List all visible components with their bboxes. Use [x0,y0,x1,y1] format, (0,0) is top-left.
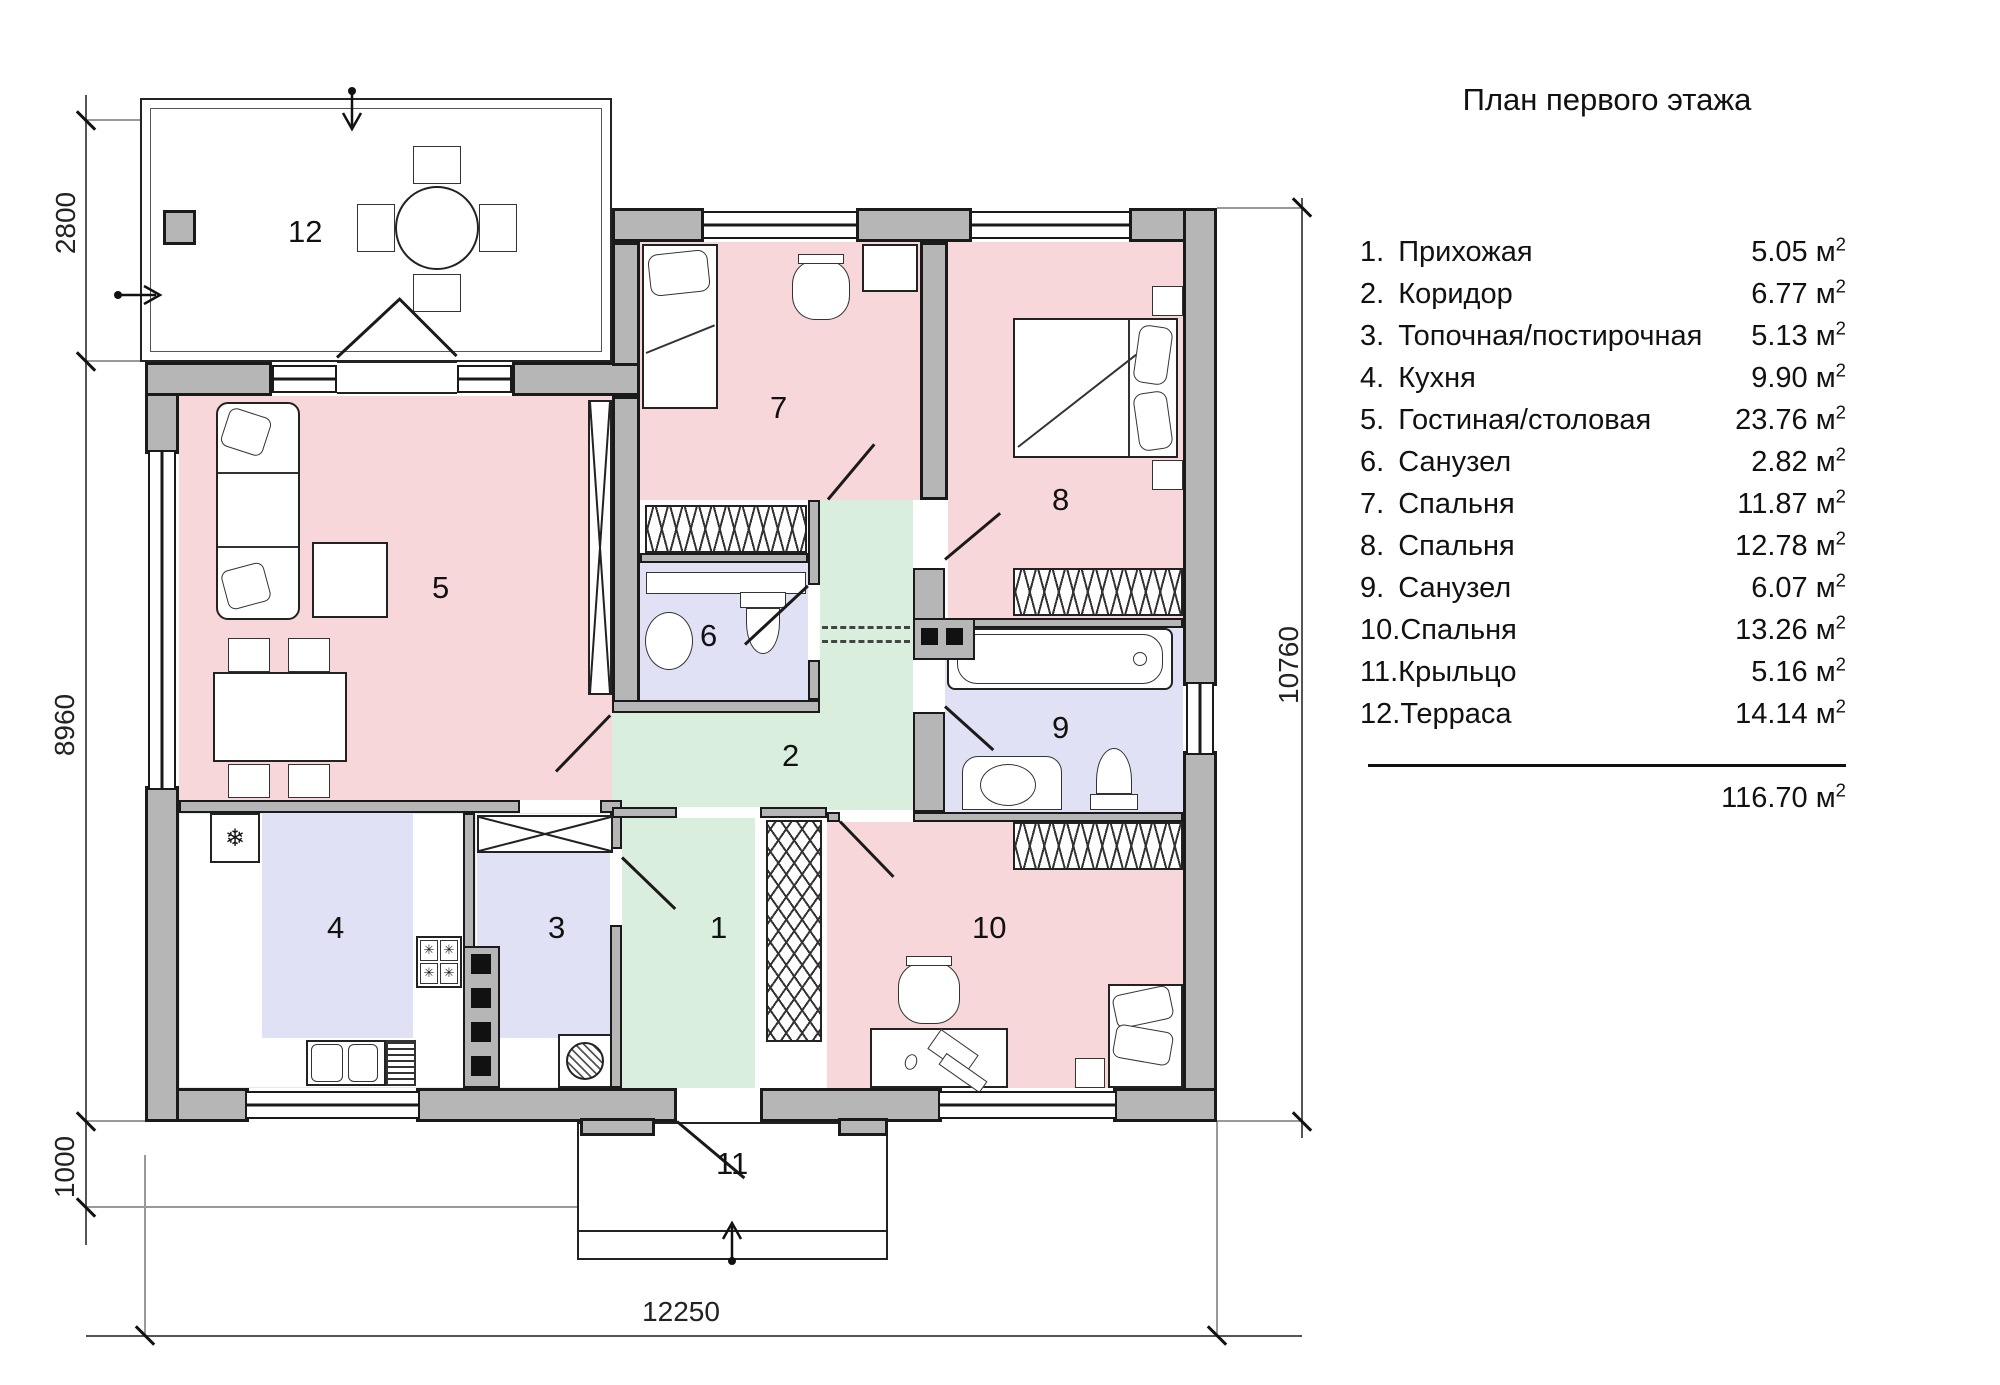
wall [808,660,820,700]
legend-num: 8. [1360,530,1384,563]
legend-row: 5.Гостиная/столовая23.76 м2 [1360,404,1850,446]
room-label-6: 6 [700,618,717,654]
legend-num: 12. [1360,698,1400,731]
burner-icon: ✳ [420,940,438,961]
extension-line [86,1120,146,1122]
wardrobe [766,820,822,1042]
wall [760,807,827,818]
desk [862,244,918,292]
nightstand [1152,460,1183,490]
legend-area: 23.76 [1735,404,1808,436]
washbasin [980,764,1036,806]
porch-pilaster [838,1118,888,1136]
entrance-arrow-up-icon [717,1218,747,1266]
legend-num: 7. [1360,488,1384,521]
chimney-vent [471,1022,491,1042]
wardrobe [1013,822,1183,870]
window [1186,682,1214,755]
bathtub-drain [1133,652,1147,666]
extension-line [1216,1122,1218,1336]
legend-row: 1.Прихожая5.05 м2 [1360,236,1850,278]
legend-room-name: Прихожая [1398,236,1532,269]
legend-area: 11.87 [1737,488,1807,520]
extension-line [86,1206,577,1208]
hall-1-floor [622,818,755,1088]
room-label-11: 11 [716,1146,748,1182]
legend-unit-sup: 2 [1836,569,1846,590]
legend-num: 9. [1360,572,1384,605]
chimney-vent [471,954,491,974]
legend-area: 2.82 [1751,446,1807,478]
dim-label-8960: 8960 [49,665,79,785]
nightstand [1075,1058,1105,1088]
wall [1183,208,1217,686]
wall [179,800,520,813]
wall [760,1088,942,1122]
room-label-7: 7 [770,390,787,426]
legend-unit: м [1816,572,1836,604]
wall [145,786,179,1122]
entrance-arrow-right-icon [112,282,166,308]
extension-line [144,1155,146,1336]
stove: ✳ ✳ ✳ ✳ [416,936,462,988]
dining-chair [288,764,330,798]
porch-pilaster [580,1118,655,1136]
legend-row: 4.Кухня9.90 м2 [1360,362,1850,404]
legend-room-name: Санузел [1398,572,1511,605]
legend-unit: м [1816,236,1836,268]
legend-divider [1368,764,1846,767]
wardrobe [645,505,807,553]
total-unit-sup: 2 [1836,779,1846,800]
legend-room-name: Спальня [1398,488,1515,521]
wall [640,553,808,563]
legend-row: 11.Крыльцо5.16 м2 [1360,656,1850,698]
legend-unit-sup: 2 [1836,443,1846,464]
wall [610,925,622,1088]
terrace-pillar [163,210,196,245]
legend-unit-sup: 2 [1836,317,1846,338]
legend-row: 8.Спальня12.78 м2 [1360,530,1850,572]
coffee-table [312,542,388,618]
sink-basin [348,1044,378,1082]
legend-room-name: Спальня [1398,530,1515,563]
window [457,365,512,393]
sofa-seam [218,546,298,548]
wall [913,812,1183,822]
legend-area: 13.26 [1735,614,1808,646]
wall [920,242,948,500]
legend-unit: м [1816,656,1836,688]
wall [945,618,1183,628]
legend-row: 3.Топочная/постирочная5.13 м2 [1360,320,1850,362]
toilet-tank [1090,794,1138,810]
legend-room-name: Топочная/постирочная [1398,320,1702,353]
legend-unit: м [1816,362,1836,394]
legend-unit: м [1816,614,1836,646]
page-title: План первого этажа [1368,82,1846,118]
burner-icon: ✳ [440,940,458,961]
burner-icon: ✳ [440,963,458,984]
window [272,365,337,393]
vent-square [921,628,938,645]
office-chair [792,260,850,320]
window [702,211,858,239]
nightstand [1152,286,1183,316]
legend-num: 2. [1360,278,1384,311]
chimney-vent [471,1056,491,1076]
room-label-9: 9 [1052,710,1069,746]
legend-row: 12.Терраса14.14 м2 [1360,698,1850,740]
fridge: ❄ [210,813,260,863]
legend-unit-sup: 2 [1836,485,1846,506]
legend-room-name: Санузел [1398,446,1511,479]
wall [612,807,677,818]
wall [1183,751,1217,1122]
legend-area: 5.05 [1751,236,1807,268]
office-chair-back [798,254,844,264]
legend-num: 10. [1360,614,1400,647]
legend-num: 6. [1360,446,1384,479]
legend-unit: м [1816,278,1836,310]
dimension-line-left [85,95,87,1245]
legend-area: 6.77 [1751,278,1807,310]
legend-room-name: Терраса [1400,698,1511,731]
dining-chair [288,638,330,672]
dim-label-2800: 2800 [50,163,80,283]
corridor-2-floor [820,500,913,810]
dining-table [213,672,347,762]
legend-room-name: Спальня [1400,614,1517,647]
legend-unit: м [1816,698,1836,730]
extension-line [1217,1120,1303,1122]
legend-row: 2.Коридор6.77 м2 [1360,278,1850,320]
legend-unit: м [1816,446,1836,478]
terrace-chair [413,274,461,312]
dining-chair [228,764,270,798]
wall [612,396,640,713]
wall [612,208,704,242]
legend-room-name: Коридор [1398,278,1513,311]
boiler-unit [477,815,613,853]
total-unit: м [1816,782,1836,814]
legend-num: 3. [1360,320,1384,353]
burner-icon: ✳ [420,963,438,984]
room-label-8: 8 [1052,482,1069,518]
office-chair-back [906,956,952,966]
wall [1113,1088,1217,1122]
wall [145,362,272,396]
legend-total: 116.70 м2 [1500,782,1846,815]
wall [463,813,475,948]
legend-row: 7.Спальня11.87 м2 [1360,488,1850,530]
legend-row: 6.Санузел2.82 м2 [1360,446,1850,488]
room-label-10: 10 [972,910,1006,946]
legend-row: 10.Спальня13.26 м2 [1360,614,1850,656]
dim-label-10760: 10760 [1273,590,1303,740]
terrace-table [395,186,479,270]
door-threshold [337,392,457,394]
entrance-arrow-down-icon [337,86,367,134]
floor-plan-page: ❄ ✳ ✳ ✳ ✳ 12 7 8 5 6 2 9 4 3 1 10 11 [0,0,2000,1385]
legend-num: 5. [1360,404,1384,437]
wall [612,700,820,713]
legend-num: 1. [1360,236,1384,269]
terrace-chair [413,146,461,184]
wardrobe [1013,568,1183,616]
dim-label-1000: 1000 [49,1107,79,1227]
window [148,450,176,790]
legend: 1.Прихожая5.05 м2 2.Коридор6.77 м2 3.Топ… [1360,236,1850,740]
window [245,1091,420,1119]
lintel-dashed-line [822,626,910,629]
window [938,1091,1117,1119]
legend-unit-sup: 2 [1836,401,1846,422]
room-label-1: 1 [710,910,727,946]
bath-shelf [646,572,806,594]
extension-line [86,360,146,362]
legend-area: 9.90 [1751,362,1807,394]
legend-room-name: Крыльцо [1398,656,1516,689]
legend-room-name: Кухня [1398,362,1476,395]
terrace-chair [479,204,517,252]
legend-area: 14.14 [1735,698,1808,730]
legend-unit-sup: 2 [1836,611,1846,632]
dish-rack [386,1040,416,1086]
terrace-chair [357,204,395,252]
toilet-tank [740,592,786,608]
bed-pillow [647,249,711,297]
legend-unit-sup: 2 [1836,359,1846,380]
wall [416,1088,677,1122]
dim-label-12250: 12250 [561,1296,801,1328]
dining-chair [228,638,270,672]
wall [827,812,840,822]
legend-unit-sup: 2 [1836,233,1846,254]
sliding-wardrobe [588,400,612,695]
wall [512,362,640,396]
legend-num: 4. [1360,362,1384,395]
total-area: 116.70 [1721,782,1808,814]
legend-unit-sup: 2 [1836,653,1846,674]
legend-unit-sup: 2 [1836,527,1846,548]
door-threshold [337,361,457,363]
room-label-3: 3 [548,910,565,946]
snowflake-icon: ❄ [225,825,245,852]
room-label-12: 12 [288,214,322,250]
window [970,211,1131,239]
office-chair [898,962,960,1024]
room-label-5: 5 [432,570,449,606]
dimension-line-bottom [86,1335,1302,1337]
legend-unit: м [1816,320,1836,352]
wall [856,208,972,242]
chimney-vent [471,988,491,1008]
legend-unit: м [1816,488,1836,520]
legend-row: 9.Санузел6.07 м2 [1360,572,1850,614]
legend-unit-sup: 2 [1836,275,1846,296]
bed-line [1128,320,1130,456]
room-label-2: 2 [782,738,799,774]
wall [808,500,820,585]
legend-room-name: Гостиная/столовая [1398,404,1651,437]
legend-unit-sup: 2 [1836,695,1846,716]
legend-unit: м [1816,530,1836,562]
sofa-seam [218,472,298,474]
wall [913,712,945,812]
legend-area: 5.13 [1751,320,1807,352]
legend-area: 12.78 [1735,530,1808,562]
legend-num: 11. [1360,656,1398,689]
extension-line [1217,207,1303,209]
sink-basin [311,1044,343,1082]
wall [612,242,640,366]
washing-machine-drum [566,1042,604,1080]
legend-unit: м [1816,404,1836,436]
legend-area: 6.07 [1751,572,1807,604]
room-label-4: 4 [327,910,344,946]
lintel-dashed-line [822,640,910,643]
legend-area: 5.16 [1751,656,1807,688]
vent-square [946,628,963,645]
sink [645,612,693,670]
